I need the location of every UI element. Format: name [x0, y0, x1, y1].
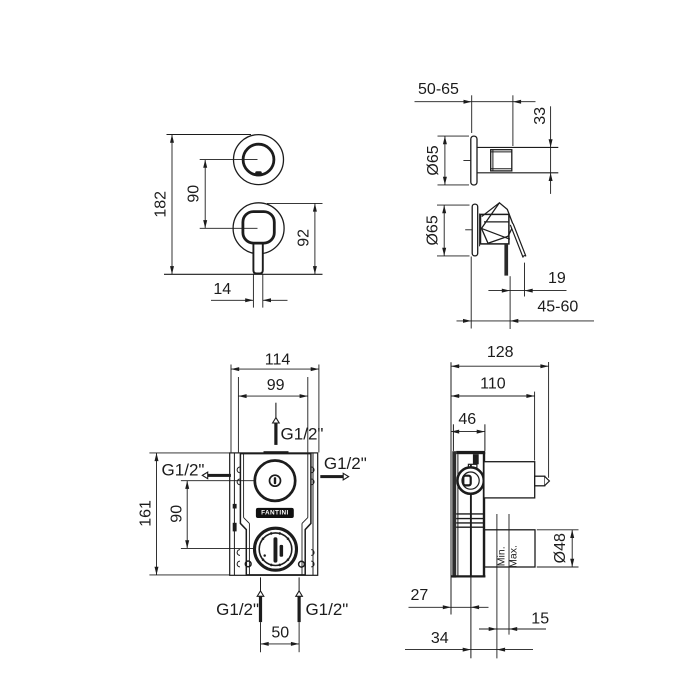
svg-text:19: 19 — [548, 270, 566, 287]
svg-text:27: 27 — [411, 587, 429, 604]
svg-text:110: 110 — [480, 376, 506, 393]
svg-text:G1/2": G1/2" — [324, 454, 367, 473]
svg-text:G1/2": G1/2" — [305, 600, 348, 619]
svg-text:33: 33 — [532, 107, 549, 125]
svg-text:90: 90 — [169, 505, 186, 523]
svg-text:99: 99 — [267, 377, 285, 394]
svg-text:Ø65: Ø65 — [425, 145, 442, 175]
svg-text:50: 50 — [271, 625, 289, 642]
svg-text:G1/2": G1/2" — [281, 424, 324, 443]
svg-text:161: 161 — [138, 500, 155, 527]
svg-text:Ø48: Ø48 — [552, 533, 569, 563]
svg-text:182: 182 — [153, 191, 170, 218]
svg-text:G1/2": G1/2" — [162, 460, 205, 479]
svg-text:Max.: Max. — [508, 545, 520, 568]
svg-text:14: 14 — [213, 281, 231, 298]
svg-text:45-60: 45-60 — [537, 299, 578, 316]
svg-text:92: 92 — [295, 229, 312, 247]
svg-text:Min.: Min. — [496, 546, 508, 566]
svg-text:Ø65: Ø65 — [424, 215, 441, 245]
svg-text:FANTINI: FANTINI — [261, 510, 289, 517]
svg-text:90: 90 — [185, 185, 202, 203]
svg-text:46: 46 — [458, 411, 476, 428]
svg-text:G1/2": G1/2" — [216, 600, 259, 619]
svg-text:50-65: 50-65 — [418, 81, 459, 98]
svg-text:128: 128 — [487, 344, 514, 361]
svg-text:15: 15 — [531, 611, 549, 628]
svg-text:114: 114 — [265, 352, 291, 369]
svg-text:34: 34 — [431, 630, 449, 647]
